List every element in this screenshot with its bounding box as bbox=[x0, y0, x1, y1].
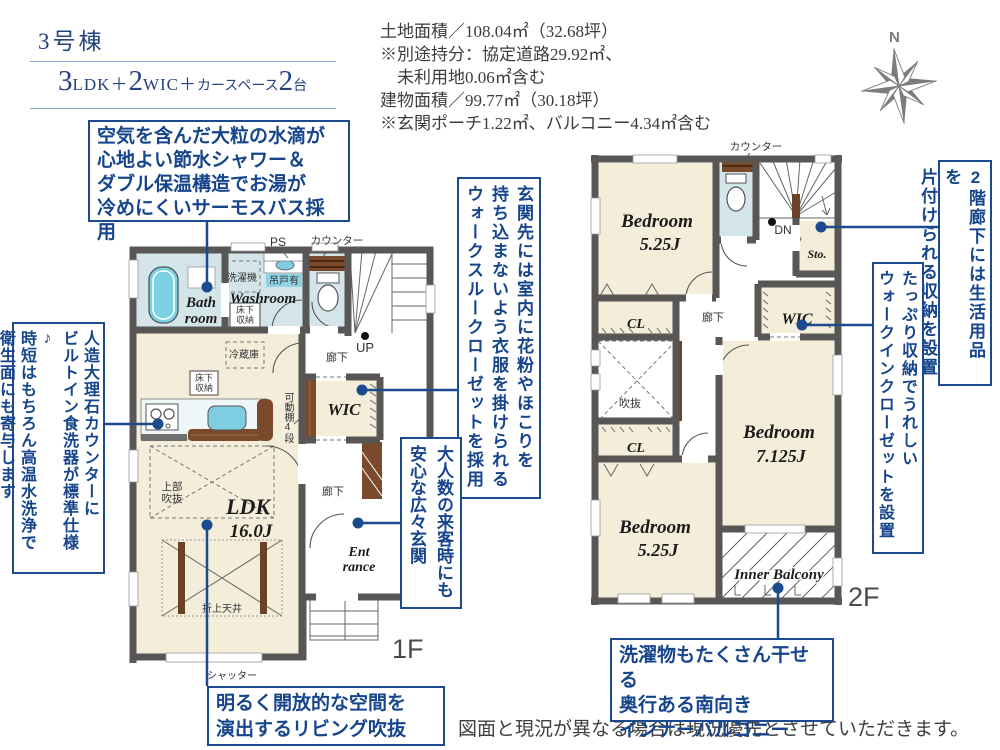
dn-label: DN bbox=[774, 223, 791, 237]
hallway-label-2f: 廊下 bbox=[702, 310, 724, 324]
note-line: ウォークスルークローゼットを採用 bbox=[461, 185, 486, 491]
room-size-bedroom3: 5.25J bbox=[638, 540, 680, 560]
note-line: 安心な広々玄関 bbox=[403, 445, 430, 601]
note-line: 奥行ある南向き bbox=[619, 693, 825, 718]
room-size-bedroom1: 5.25J bbox=[640, 234, 682, 254]
note-line: 人造大理石カウンターに bbox=[79, 330, 100, 566]
underfloor-storage-label: 収納 bbox=[195, 382, 213, 393]
underfloor-storage-label: 床下 bbox=[195, 372, 213, 383]
room-label-bath: Bath bbox=[185, 295, 216, 311]
room-label-storage: Sto. bbox=[807, 247, 826, 261]
room-label-inner-balcony: Inner Balcony bbox=[733, 567, 824, 583]
underfloor-storage-label: 収納 bbox=[236, 314, 254, 325]
note-walkthrough-closet: 玄関先には室内に花粉やほこりを 持ち込まないよう衣服を掛けられる ウォークスルー… bbox=[457, 177, 541, 499]
room-label-bath: room bbox=[185, 311, 218, 327]
note-bath-feature: 空気を含んだ大粒の水滴が 心地よい節水シャワー＆ ダブル保温構造でお湯が 冷めに… bbox=[88, 120, 350, 222]
note-line: 明るく開放的な空間を bbox=[216, 691, 436, 717]
upper-void-label: 吹抜 bbox=[162, 492, 183, 505]
room-label-wic-1f: WIC bbox=[327, 400, 361, 419]
room-label-closet2: CL bbox=[627, 441, 645, 456]
note-line: 大人数の来客時にも bbox=[430, 445, 457, 601]
note-line: 衛生面にも寄与します bbox=[0, 330, 16, 566]
note-line: 玄関先には室内に花粉やほこりを bbox=[511, 185, 536, 491]
note-kitchen-dishwasher: 人造大理石カウンターに ビルトイン食洗器が標準仕様♪ 時短はもちろん高温水洗浄で… bbox=[12, 322, 105, 574]
note-line: 洗濯物もたくさん干せる bbox=[619, 643, 825, 693]
room-size-bedroom2: 7.125J bbox=[756, 446, 807, 466]
note-line: 空気を含んだ大粒の水滴が bbox=[97, 125, 341, 149]
room-label-bedroom3: Bedroom bbox=[618, 517, 691, 538]
floor2-label: 2F bbox=[848, 582, 880, 612]
room-size-ldk: 16.0J bbox=[230, 521, 273, 542]
void-label: 吹抜 bbox=[619, 396, 641, 410]
hallway-label: 廊下 bbox=[322, 484, 344, 498]
upper-void-label: 上部 bbox=[162, 480, 183, 493]
note-line: ビルトイン食洗器が標準仕様♪ bbox=[37, 330, 79, 566]
floor1-plan: Bath room Washroom 洗濯機 吊戸有 床下 収納 PS カウンタ… bbox=[129, 235, 435, 682]
floor1-label: 1F bbox=[392, 634, 424, 664]
note-line: インナーバルコニー bbox=[619, 718, 825, 743]
up-label: UP bbox=[356, 340, 374, 355]
note-line: たっぷり収納でうれしい bbox=[896, 270, 919, 546]
note-line: 2階廊下には生活用品を bbox=[939, 168, 987, 378]
room-label-bedroom1: Bedroom bbox=[620, 211, 693, 232]
shutter-label: シャッター bbox=[207, 670, 257, 682]
underfloor-storage-label: 床下 bbox=[236, 304, 254, 315]
note-line: 冷めにくいサーモスバス採用 bbox=[97, 197, 341, 245]
washer-label: 洗濯機 bbox=[227, 271, 257, 284]
note-line: 時短はもちろん高温水洗浄で bbox=[16, 330, 37, 566]
room-label-closet1: CL bbox=[627, 317, 645, 332]
note-living-void: 明るく開放的な空間を 演出するリビング吹抜 bbox=[207, 686, 445, 746]
note-spacious-entrance: 大人数の来客時にも 安心な広々玄関 bbox=[400, 437, 462, 609]
note-line: ダブル保温構造でお湯が bbox=[97, 173, 341, 197]
note-line: 演出するリビング吹抜 bbox=[216, 717, 436, 743]
note-line: 持ち込まないよう衣服を掛けられる bbox=[486, 185, 511, 491]
counter-label-2f: カウンター bbox=[730, 141, 783, 153]
room-label-entrance: rance bbox=[343, 560, 376, 575]
movable-shelf-label: 可動棚4段 bbox=[281, 392, 293, 450]
note-line: 心地よい節水シャワー＆ bbox=[97, 149, 341, 173]
note-2f-hall-storage: 2階廊下には生活用品を 片付けられる収納を設置 bbox=[938, 160, 992, 386]
fridge-label: 冷蔵庫 bbox=[229, 348, 259, 361]
hanging-cupboard-label: 吊戸有 bbox=[269, 274, 299, 287]
floor-plan-sheet: 3号棟 3LDK＋2WIC＋カースペース2台 土地面積／108.04㎡（32.6… bbox=[0, 0, 1000, 750]
note-line: ウォークインクローゼットを設置 bbox=[873, 270, 896, 546]
floor2-plan: カウンター Bedroom 5.25J DN Sto. CL 廊下 WIC 吹抜… bbox=[591, 141, 880, 612]
room-label-entrance: Ent bbox=[347, 545, 370, 560]
hallway-label: 廊下 bbox=[326, 350, 348, 364]
room-label-bedroom2: Bedroom bbox=[742, 422, 815, 443]
note-2f-wic: たっぷり収納でうれしい ウォークインクローゼットを設置 bbox=[872, 262, 924, 554]
note-inner-balcony: 洗濯物もたくさん干せる 奥行ある南向き インナーバルコニー bbox=[610, 638, 834, 722]
room-label-ldk: LDK bbox=[225, 494, 271, 519]
